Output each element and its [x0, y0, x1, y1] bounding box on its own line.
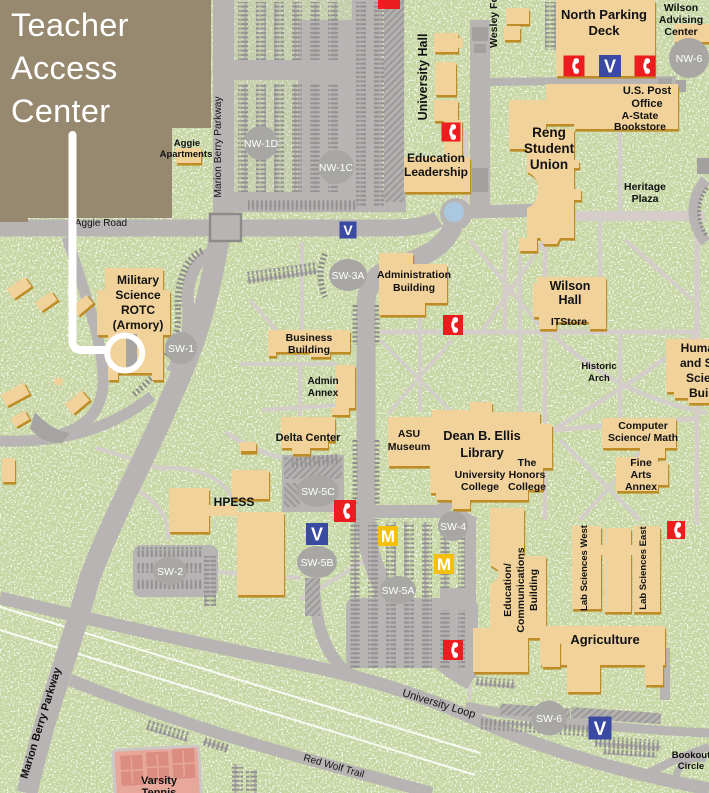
svg-text:Wilson: Wilson	[664, 2, 698, 14]
svg-text:Leadership: Leadership	[404, 165, 468, 179]
svg-text:SW-2: SW-2	[157, 566, 183, 578]
svg-text:Annex: Annex	[625, 481, 657, 493]
svg-text:Reng: Reng	[532, 125, 566, 140]
svg-text:Plaza: Plaza	[632, 193, 659, 205]
svg-text:Advising: Advising	[659, 14, 703, 26]
svg-text:ITStore: ITStore	[551, 316, 587, 328]
svg-text:and Social: and Social	[680, 356, 709, 370]
svg-text:North Parking: North Parking	[561, 7, 647, 22]
svg-text:College: College	[461, 481, 499, 493]
svg-text:Business: Business	[286, 332, 333, 344]
svg-text:Administration: Administration	[377, 269, 451, 281]
svg-text:Agriculture: Agriculture	[570, 632, 639, 647]
svg-text:Fine: Fine	[630, 457, 652, 469]
svg-text:Dean B. Ellis: Dean B. Ellis	[443, 428, 521, 443]
svg-text:Tennis: Tennis	[142, 787, 177, 793]
svg-text:Lab Sciences East: Lab Sciences East	[638, 525, 649, 609]
svg-text:Museum: Museum	[388, 441, 431, 453]
svg-text:College: College	[508, 481, 546, 493]
svg-text:SW-3A: SW-3A	[331, 270, 364, 282]
svg-text:HPESS: HPESS	[214, 495, 255, 509]
svg-text:Apartments: Apartments	[160, 149, 213, 160]
svg-text:Sciences: Sciences	[686, 371, 709, 385]
svg-text:Deck: Deck	[588, 23, 620, 38]
svg-text:Center: Center	[11, 93, 110, 129]
svg-text:Aggie Road: Aggie Road	[75, 218, 127, 229]
svg-text:Wesley Fo: Wesley Fo	[488, 0, 500, 48]
svg-text:M: M	[437, 555, 451, 574]
svg-text:Access: Access	[11, 50, 118, 86]
svg-text:Center: Center	[664, 26, 697, 38]
svg-text:Military: Military	[117, 273, 159, 287]
svg-text:Union: Union	[530, 157, 568, 172]
svg-text:SW-1: SW-1	[168, 343, 194, 355]
svg-text:NW-1D: NW-1D	[244, 138, 279, 150]
svg-text:Building: Building	[689, 386, 709, 400]
svg-text:NW-1C: NW-1C	[319, 162, 354, 174]
svg-text:Hall: Hall	[559, 293, 582, 307]
svg-text:Library: Library	[460, 445, 504, 460]
svg-text:V: V	[594, 719, 607, 740]
svg-text:(Armory): (Armory)	[113, 318, 164, 332]
svg-text:Wilson: Wilson	[550, 279, 591, 293]
svg-text:Marion Berry Parkway: Marion Berry Parkway	[213, 96, 224, 198]
svg-text:Heritage: Heritage	[624, 181, 666, 193]
svg-text:University: University	[455, 469, 506, 481]
svg-text:Circle: Circle	[678, 761, 704, 772]
svg-text:SW-4: SW-4	[440, 521, 466, 533]
svg-text:V: V	[311, 525, 323, 545]
svg-text:V: V	[343, 222, 353, 238]
svg-text:Arch: Arch	[588, 373, 610, 384]
svg-text:Aggie: Aggie	[174, 138, 200, 149]
svg-text:Teacher: Teacher	[11, 7, 129, 43]
svg-text:M: M	[381, 527, 395, 546]
svg-text:ROTC: ROTC	[121, 303, 155, 317]
svg-text:Lab Sciences West: Lab Sciences West	[579, 524, 590, 611]
svg-text:SW-5C: SW-5C	[301, 486, 335, 498]
svg-text:Bookstore: Bookstore	[614, 121, 666, 133]
svg-text:Science/ Math: Science/ Math	[608, 432, 678, 444]
svg-text:Historic: Historic	[581, 361, 616, 372]
svg-text:Building: Building	[393, 282, 435, 294]
svg-text:Office: Office	[631, 98, 662, 110]
svg-text:Student: Student	[524, 141, 575, 156]
svg-text:Admin: Admin	[307, 376, 338, 387]
svg-text:SW-5A: SW-5A	[381, 585, 414, 597]
svg-text:Education: Education	[407, 151, 465, 165]
svg-text:Science: Science	[115, 288, 161, 302]
svg-text:Building: Building	[528, 569, 540, 611]
svg-text:ASU: ASU	[398, 428, 420, 440]
svg-text:The: The	[518, 457, 537, 469]
svg-text:Delta Center: Delta Center	[276, 432, 342, 444]
svg-text:Honors: Honors	[509, 469, 546, 481]
svg-text:Arts: Arts	[630, 469, 651, 481]
svg-text:Computer: Computer	[618, 420, 668, 432]
svg-text:Annex: Annex	[308, 388, 339, 399]
svg-text:NW-6: NW-6	[676, 53, 703, 65]
svg-text:SW-6: SW-6	[536, 713, 562, 725]
svg-text:Communications: Communications	[515, 547, 527, 632]
svg-text:Building: Building	[288, 344, 330, 356]
svg-text:V: V	[604, 57, 616, 77]
svg-text:Bookout: Bookout	[672, 750, 709, 761]
svg-text:U.S. Post: U.S. Post	[623, 85, 672, 97]
svg-text:Humanities: Humanities	[681, 341, 709, 355]
svg-text:SW-5B: SW-5B	[300, 557, 333, 569]
svg-text:Varsity: Varsity	[141, 775, 178, 787]
svg-text:University Hall: University Hall	[416, 34, 430, 121]
svg-text:Education/: Education/	[502, 563, 514, 617]
